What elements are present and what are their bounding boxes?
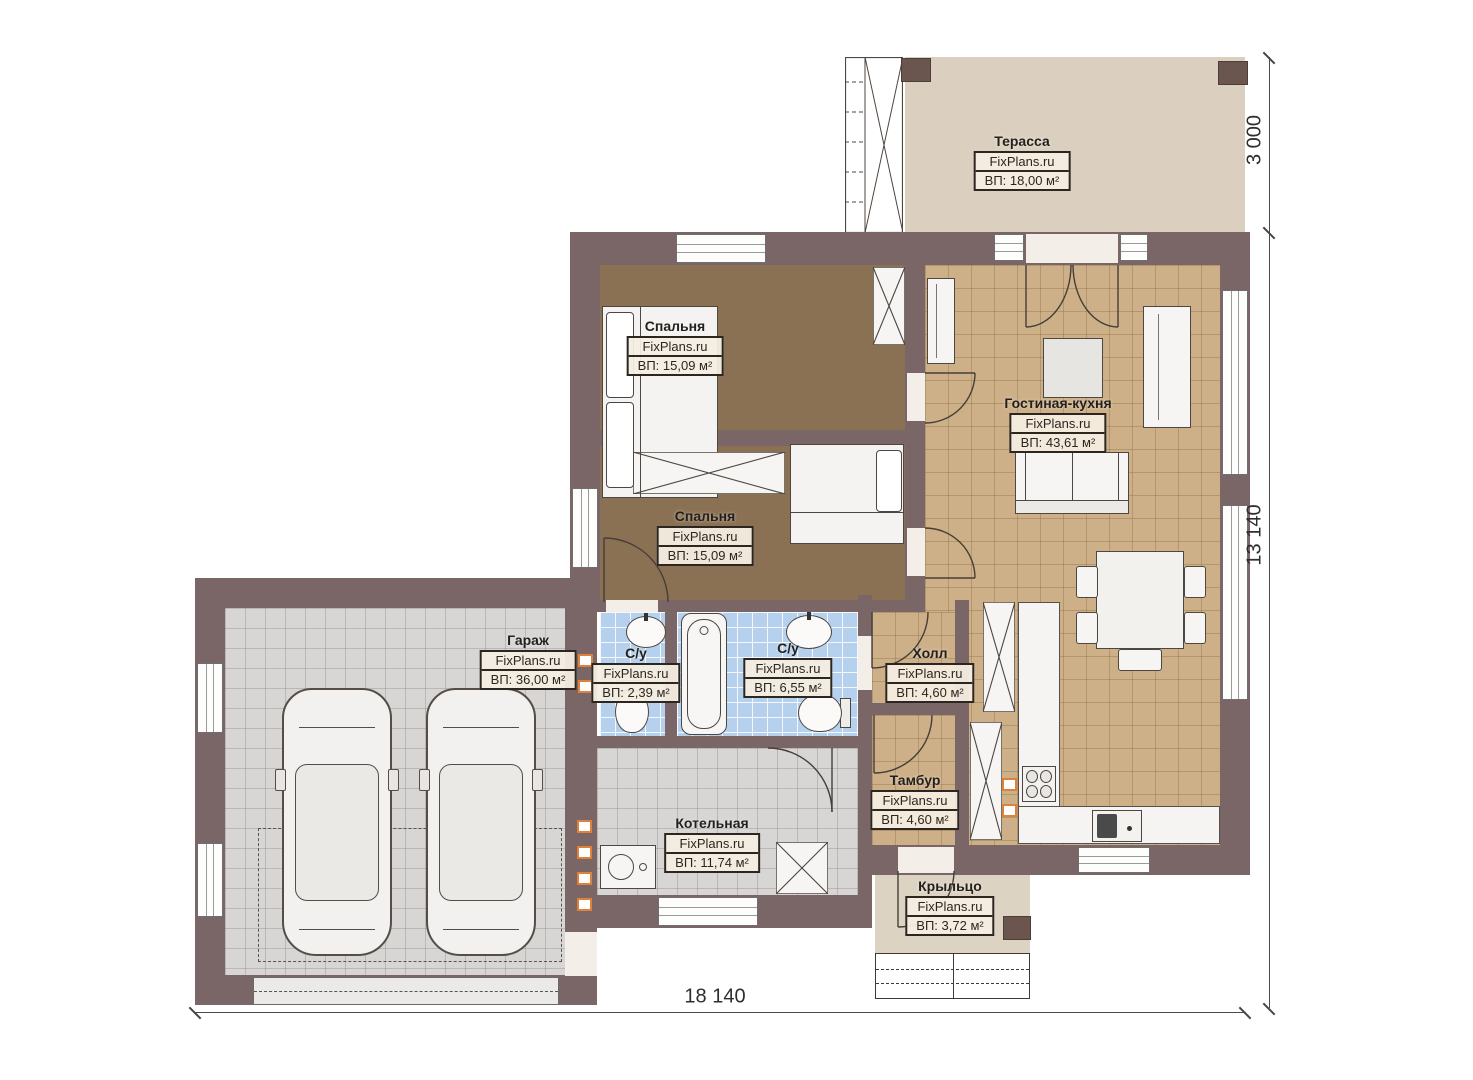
vent-icon [1002,778,1017,791]
room-label-hall: Холл FixPlans.ru ВП: 4,60 м² [885,645,974,703]
watermark: FixPlans.ru [482,652,575,671]
room-info-box: FixPlans.ru ВП: 15,09 м² [657,526,754,566]
watermark: FixPlans.ru [593,665,678,684]
chair-icon [1118,649,1162,671]
room-label-vestibule: Тамбур FixPlans.ru ВП: 4,60 м² [870,772,959,830]
chair-icon [1184,612,1206,644]
terrace-pillar [1218,61,1248,85]
room-name: Терасса [994,133,1050,149]
room-info-box: FixPlans.ru ВП: 4,60 м² [870,790,959,830]
floor-plan: Терасса FixPlans.ru ВП: 18,00 м² Спальня… [0,0,1473,1080]
kitchen-counter [1018,602,1060,838]
pillow-icon [606,402,634,488]
watermark: FixPlans.ru [976,153,1069,172]
chair-icon [1184,566,1206,598]
room-name: Спальня [675,508,735,524]
room-area: ВП: 36,00 м² [482,671,575,688]
room-label-wc-large: С/у FixPlans.ru ВП: 6,55 м² [743,640,832,698]
room-area: ВП: 3,72 м² [907,917,992,934]
window [197,843,223,917]
bathtub-icon [681,613,727,735]
watermark: FixPlans.ru [629,338,722,357]
vent-icon [577,846,592,859]
dimension-right: 13 140 [1244,504,1267,565]
room-area: ВП: 4,60 м² [872,811,957,828]
vent-icon [577,872,592,885]
window [572,488,598,568]
room-info-box: FixPlans.ru ВП: 2,39 м² [591,663,680,703]
room-info-box: FixPlans.ru ВП: 15,09 м² [627,336,724,376]
room-area: ВП: 15,09 м² [659,547,752,564]
porch-steps-icon [875,953,1030,999]
wardrobe-icon [633,452,785,494]
dimension-tick [1239,1007,1252,1020]
wall [858,703,958,715]
room-area: ВП: 15,09 м² [629,357,722,374]
bed-fold-line [790,512,904,513]
door-arc [874,715,932,773]
vent-icon [1002,804,1017,817]
dimension-tick [189,1007,202,1020]
washer-icon [600,845,656,889]
car-icon [282,688,392,956]
room-name: Крыльцо [918,878,982,894]
watermark: FixPlans.ru [745,660,830,679]
wall [195,578,225,1005]
car-icon [426,688,536,956]
door-opening [898,847,954,873]
vent-icon [577,898,592,911]
window [676,234,766,263]
door-arc [925,373,975,423]
room-label-terrace: Терасса FixPlans.ru ВП: 18,00 м² [974,133,1071,191]
sofa-icon [1015,452,1129,514]
fridge-closet-icon [983,602,1015,712]
dining-table-icon [1096,551,1184,649]
tv-cabinet-icon [927,278,955,364]
wall [590,736,870,748]
window-seat-icon [1143,306,1191,428]
room-label-boiler: Котельная FixPlans.ru ВП: 11,74 м² [664,815,760,873]
wall [570,232,1250,265]
room-name: Холл [912,645,947,661]
room-area: ВП: 11,74 м² [666,854,758,871]
watermark: FixPlans.ru [1012,415,1105,434]
kitchen-sink-icon [1092,810,1142,842]
watermark: FixPlans.ru [887,665,972,684]
watermark: FixPlans.ru [659,528,752,547]
door-arc [1026,265,1071,327]
dimension-terrace-depth: 3 000 [1244,115,1267,165]
room-name: Гараж [507,632,549,648]
room-name: С/у [777,640,799,656]
room-label-garage: Гараж FixPlans.ru ВП: 36,00 м² [480,632,577,690]
window [1078,847,1150,873]
room-info-box: FixPlans.ru ВП: 3,72 м² [905,896,994,936]
wardrobe-icon [873,267,905,345]
terrace-trellis-icon [845,57,903,233]
door-opening [907,528,925,576]
room-info-box: FixPlans.ru ВП: 43,61 м² [1010,413,1107,453]
room-area: ВП: 6,55 м² [745,679,830,696]
dimension-line-bottom [195,1012,1245,1013]
room-label-wc-small: С/у FixPlans.ru ВП: 2,39 м² [591,645,680,703]
boiler-equipment-icon [776,842,828,894]
sink-icon [626,616,666,648]
door-opening [1026,234,1118,263]
room-area: ВП: 18,00 м² [976,172,1069,189]
window [197,663,223,733]
door-arc [1073,265,1118,327]
coffee-table-icon [1043,338,1103,398]
room-label-porch: Крыльцо FixPlans.ru ВП: 3,72 м² [905,878,994,936]
room-label-living-kitchen: Гостиная-кухня FixPlans.ru ВП: 43,61 м² [1004,395,1111,453]
door-opening [858,636,872,690]
room-name: Тамбур [890,772,941,788]
watermark: FixPlans.ru [872,792,957,811]
window [658,897,758,926]
garage-door [253,977,559,1005]
window [1120,234,1148,261]
room-info-box: FixPlans.ru ВП: 4,60 м² [885,663,974,703]
terrace-floor [905,57,1245,232]
room-area: ВП: 43,61 м² [1012,434,1105,451]
room-info-box: FixPlans.ru ВП: 36,00 м² [480,650,577,690]
window [994,234,1024,261]
chair-icon [1076,566,1098,598]
watermark: FixPlans.ru [907,898,992,917]
dimension-line-right [1269,57,1270,1008]
room-name: Спальня [645,318,705,334]
dimension-bottom: 18 140 [684,986,745,1009]
vent-icon [577,820,592,833]
door-opening [907,373,925,421]
room-label-bedroom-2: Спальня FixPlans.ru ВП: 15,09 м² [657,508,754,566]
chair-icon [1076,612,1098,644]
room-area: ВП: 2,39 м² [593,684,678,701]
terrace-pillar [901,58,931,82]
watermark: FixPlans.ru [666,835,758,854]
room-name: Котельная [675,815,748,831]
room-label-bedroom-1: Спальня FixPlans.ru ВП: 15,09 м² [627,318,724,376]
room-info-box: FixPlans.ru ВП: 6,55 м² [743,658,832,698]
window [1222,290,1248,475]
room-name: Гостиная-кухня [1004,395,1111,411]
toilet-icon [798,694,842,732]
room-name: С/у [625,645,647,661]
stove-icon [1022,766,1056,802]
door-arc [768,748,832,812]
pillow-icon [876,450,902,512]
wall [195,578,597,608]
room-info-box: FixPlans.ru ВП: 18,00 м² [974,151,1071,191]
door-arc [925,528,975,578]
closet-icon [970,722,1002,840]
room-info-box: FixPlans.ru ВП: 11,74 м² [664,833,760,873]
porch-pillar [1003,916,1031,940]
door-opening [565,932,597,976]
room-area: ВП: 4,60 м² [887,684,972,701]
